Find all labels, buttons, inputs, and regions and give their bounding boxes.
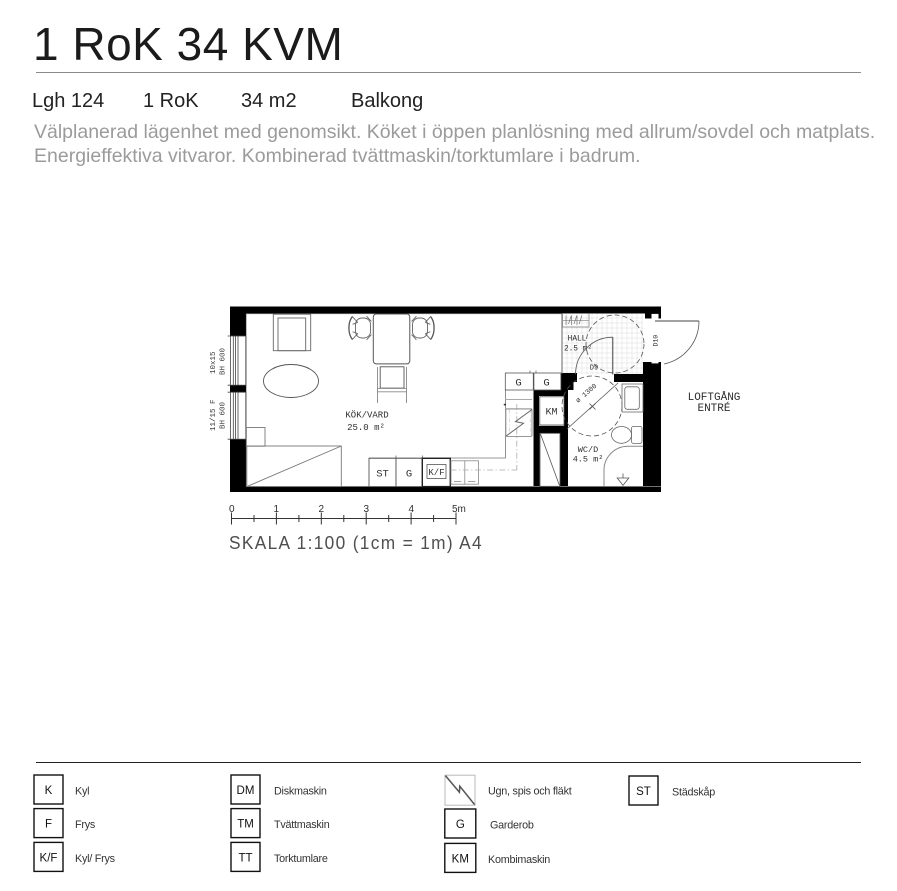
svg-text:D10: D10	[653, 335, 660, 347]
svg-text:F: F	[45, 819, 52, 831]
svg-text:G: G	[515, 378, 521, 390]
svg-text:SKALA 1:100 (1cm = 1m) A4: SKALA 1:100 (1cm = 1m) A4	[229, 533, 483, 553]
svg-text:Ugn, spis och fläkt: Ugn, spis och fläkt	[488, 786, 572, 798]
svg-text:ø 1300: ø 1300	[575, 383, 599, 406]
svg-text:TM: TM	[237, 819, 254, 831]
svg-text:K/F: K/F	[428, 468, 444, 478]
svg-text:D9: D9	[590, 365, 598, 373]
svg-text:HALL: HALL	[568, 336, 587, 344]
svg-text:WC/D: WC/D	[578, 445, 598, 455]
svg-text:Frys: Frys	[75, 819, 96, 831]
svg-text:Kombimaskin: Kombimaskin	[488, 854, 550, 866]
svg-text:11/15 F: 11/15 F	[210, 399, 218, 431]
svg-text:G: G	[406, 469, 412, 481]
svg-text:K/F: K/F	[40, 852, 58, 864]
svg-text:10x15: 10x15	[210, 351, 218, 374]
svg-text:Diskmaskin: Diskmaskin	[274, 786, 327, 798]
svg-text:BH 600: BH 600	[220, 347, 228, 375]
svg-text:Tvättmaskin: Tvättmaskin	[274, 819, 330, 831]
svg-text:ST: ST	[376, 469, 389, 481]
svg-text:ST: ST	[636, 786, 651, 798]
svg-text:ENTRÉ: ENTRÉ	[697, 401, 730, 415]
svg-text:Städskåp: Städskåp	[672, 787, 715, 799]
svg-text:2.5 m²: 2.5 m²	[564, 345, 592, 354]
svg-text:Torktumlare: Torktumlare	[274, 853, 328, 865]
svg-text:BH 600: BH 600	[220, 401, 228, 429]
svg-text:4.5 m²: 4.5 m²	[573, 455, 604, 465]
svg-text:K: K	[45, 785, 53, 797]
svg-text:Garderob: Garderob	[490, 820, 534, 832]
svg-text:G: G	[456, 819, 465, 831]
svg-text:G: G	[543, 378, 549, 390]
svg-text:Kyl: Kyl	[75, 786, 89, 798]
svg-text:KM: KM	[545, 408, 557, 419]
svg-text:5m: 5m	[452, 504, 466, 515]
svg-text:25.0 m²: 25.0 m²	[347, 423, 385, 433]
svg-text:KÖK/VARD: KÖK/VARD	[345, 410, 388, 421]
svg-text:KM: KM	[452, 853, 469, 865]
svg-text:DM: DM	[237, 785, 255, 797]
svg-text:TT: TT	[238, 852, 252, 864]
svg-text:Kyl/ Frys: Kyl/ Frys	[75, 853, 116, 865]
